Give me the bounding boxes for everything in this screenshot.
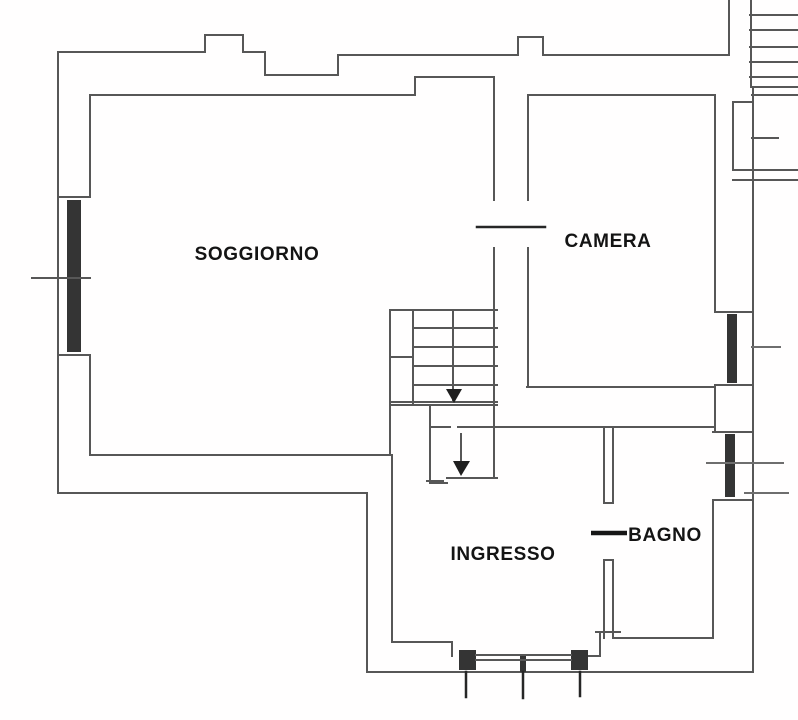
room-label-camera: CAMERA xyxy=(565,231,652,252)
camera-partition-wall xyxy=(494,77,528,478)
window-east-lower xyxy=(707,432,788,500)
external-staircase xyxy=(750,0,798,87)
room-label-ingresso: INGRESSO xyxy=(450,544,555,565)
stair-down-arrow-lower xyxy=(453,461,470,476)
window-east-upper xyxy=(715,312,780,385)
floor-plan-drawing: SOGGIORNO CAMERA INGRESSO BAGNO xyxy=(0,0,798,720)
exterior-walls xyxy=(58,1,753,672)
room-labels: SOGGIORNO CAMERA INGRESSO BAGNO xyxy=(195,231,702,565)
interior-walls xyxy=(90,77,715,656)
window-left xyxy=(32,197,90,355)
floor-plan: SOGGIORNO CAMERA INGRESSO BAGNO xyxy=(0,0,798,720)
room-label-soggiorno: SOGGIORNO xyxy=(195,244,320,265)
stair-down-arrow-upper xyxy=(446,389,462,403)
south-window xyxy=(459,650,588,698)
balcony xyxy=(733,87,798,180)
room-label-bagno: BAGNO xyxy=(628,525,702,546)
staircase xyxy=(390,310,497,483)
